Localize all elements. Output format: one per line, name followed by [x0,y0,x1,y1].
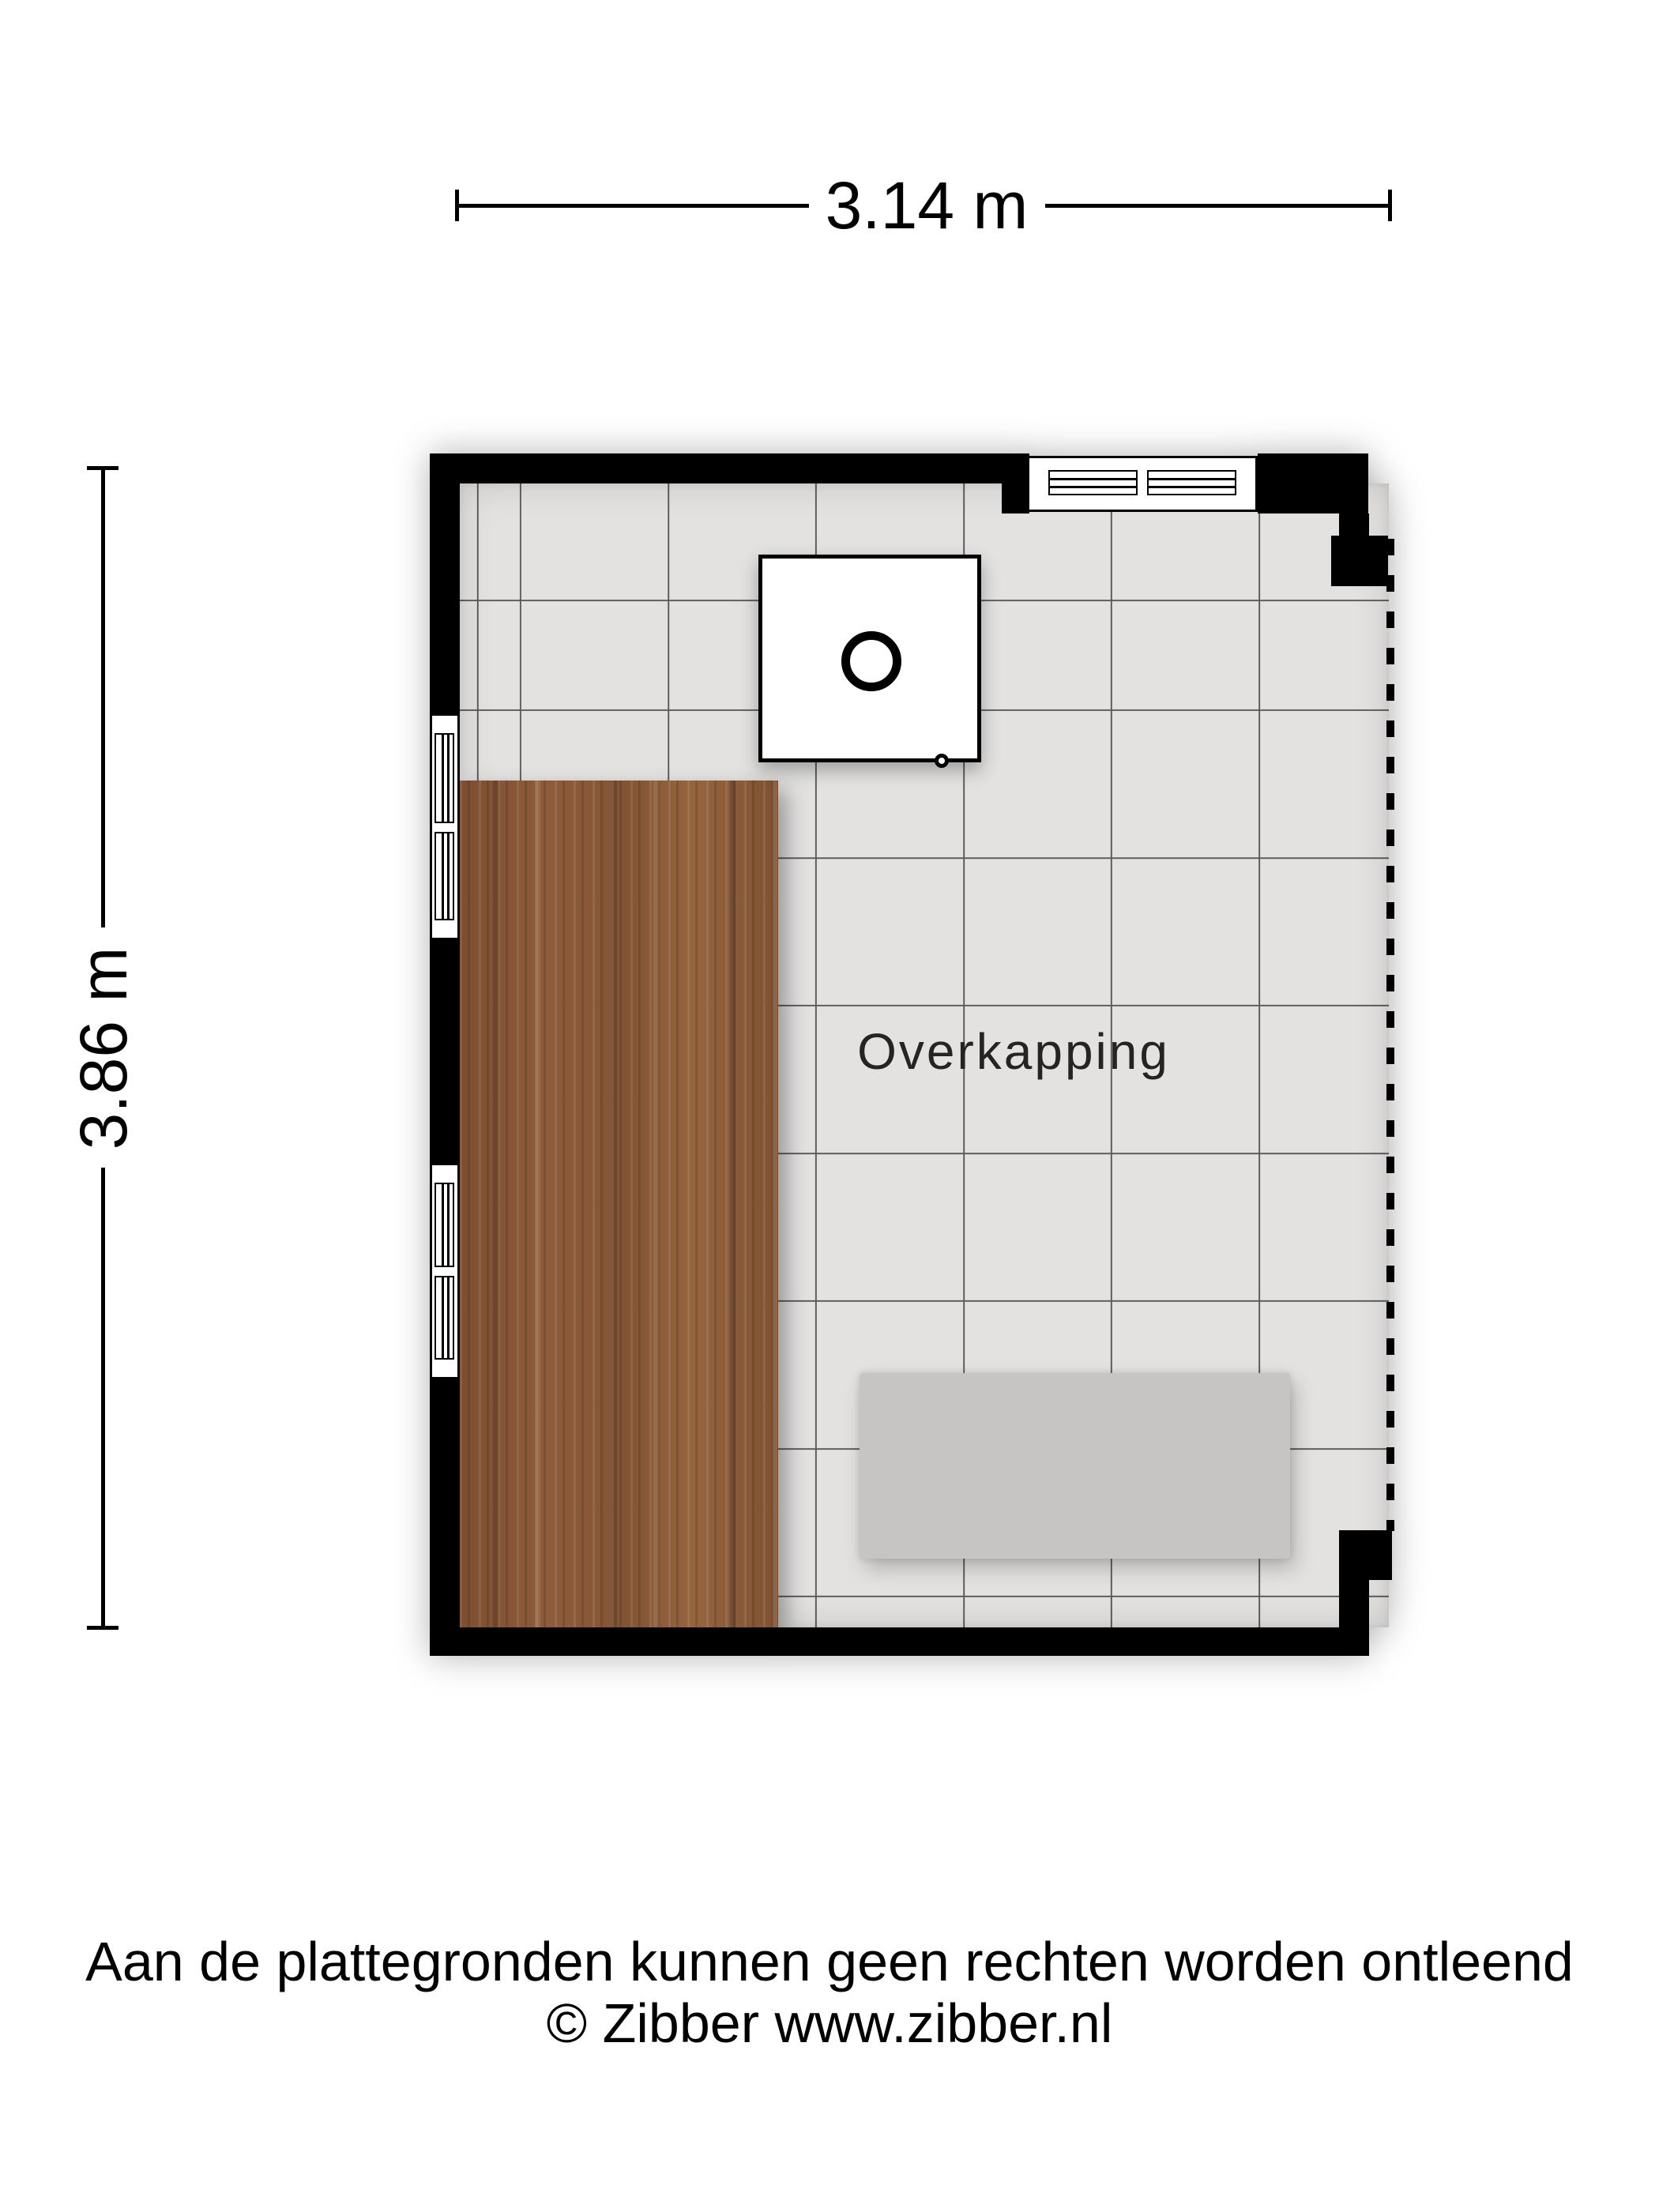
dimension-top-line-left [457,204,809,208]
open-edge-dashed-line [1386,539,1394,1531]
dimension-label-height: 3.86 m [69,947,138,1150]
dimension-label-width: 3.14 m [808,171,1045,240]
stove-burner-circle [841,631,901,691]
window-left-upper-louvers [434,733,454,920]
footer: Aan de plattegronden kunnen geen rechten… [0,1931,1659,2054]
room-label: Overkapping [816,1016,1211,1087]
stove-symbol [758,555,981,762]
dimension-left-tick-bottom [87,1626,118,1630]
bench-symbol [860,1373,1290,1559]
dimension-top-tick-right [1388,190,1392,221]
page: { "dimensions": { "width_label": "3.14 m… [0,0,1659,2212]
window-left-lower-mullion [434,1266,454,1277]
wall-top-right-notch [1339,513,1369,536]
window-top-louvers [1048,470,1236,495]
footer-copyright: © Zibber www.zibber.nl [0,1992,1659,2054]
wall-bottom-right [1339,1580,1369,1627]
window-left-upper [430,713,460,940]
pillar-top-right [1331,536,1388,586]
wall-left-lower [430,1379,460,1656]
pillar-bottom-right [1339,1530,1392,1580]
window-left-lower-louvers [434,1183,454,1360]
wall-top-window-return [1002,483,1029,513]
window-left-lower [430,1163,460,1379]
dimension-left-line-bottom [101,1168,105,1629]
wall-left-middle [430,940,460,1163]
wall-top-left [430,453,1029,483]
dimension-left-line-top [101,468,105,927]
window-top-mullion [1136,470,1149,495]
window-top [1027,456,1258,512]
dimension-top-line-right [1045,204,1390,208]
stove-knob [935,754,949,768]
wall-left-upper [430,453,460,713]
wall-top-right [1258,453,1368,513]
footer-disclaimer: Aan de plattegronden kunnen geen rechten… [0,1931,1659,1992]
wall-bottom [430,1627,1369,1656]
wood-deck [460,781,778,1627]
window-left-upper-mullion [434,822,454,833]
